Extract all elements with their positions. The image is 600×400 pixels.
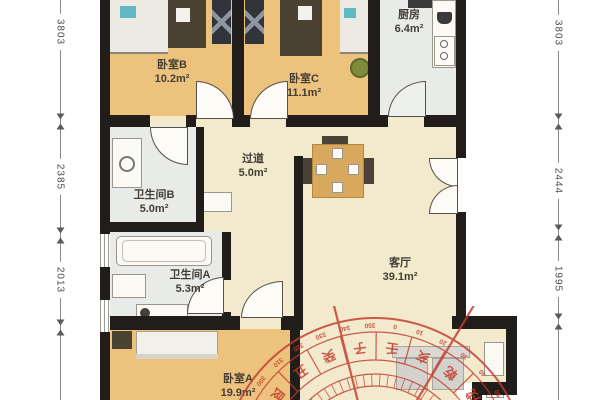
svg-text:艮: 艮 xyxy=(268,385,288,400)
outer-wall-left xyxy=(100,0,110,400)
wall-bathroomA-right-upper xyxy=(222,232,231,280)
svg-text:10: 10 xyxy=(415,327,424,336)
dim-left-3: 2013 xyxy=(54,262,67,298)
wall-under-bedroomB-1 xyxy=(109,115,150,127)
wardrobe-b-detail xyxy=(176,8,190,22)
dimension-line-left xyxy=(60,0,61,400)
wall-under-bedroomB-2 xyxy=(186,115,196,127)
wall-bathroomB-bottom xyxy=(109,222,204,232)
floor-plan-canvas: 卧室B 10.2m² 卧室C 11.1m² 厨房 6.4m² 过道 5.0m² … xyxy=(0,0,600,400)
room-label-kitchen: 厨房 6.4m² xyxy=(395,8,424,37)
window-bathroom-a xyxy=(100,234,110,267)
dim-right-1: 3803 xyxy=(552,15,565,51)
dim-marker xyxy=(554,114,563,131)
kitchen-sink-icon xyxy=(437,12,452,24)
bathtub-inner xyxy=(122,240,206,262)
room-name: 过道 xyxy=(239,152,268,166)
fengshui-compass: 艮丑癸子壬亥乾戌30031032033034035001020304050 xyxy=(203,306,547,400)
room-name: 卫生间B xyxy=(134,188,175,202)
svg-text:20: 20 xyxy=(438,337,448,347)
dim-right-2: 2444 xyxy=(552,163,565,199)
plant-bedroom-c xyxy=(350,58,370,78)
dim-marker xyxy=(56,228,65,245)
pillow-bedroom-c xyxy=(344,8,356,18)
washer-drum-icon xyxy=(119,156,135,172)
room-area: 5.0m² xyxy=(239,166,268,180)
dining-chair-east xyxy=(364,158,374,184)
bathroom-a-sink xyxy=(112,274,146,298)
pillow-bedroom-b xyxy=(120,6,136,18)
svg-text:子: 子 xyxy=(353,340,368,356)
window-bedroom-a xyxy=(100,300,110,332)
stove-burner-icon xyxy=(440,40,448,48)
place-setting xyxy=(316,164,327,175)
dim-left-1: 3803 xyxy=(54,14,67,50)
outer-wall-right-upper xyxy=(456,0,466,158)
hall-cabinet xyxy=(202,192,232,212)
room-label-corridor: 过道 5.0m² xyxy=(239,152,268,181)
svg-text:戌: 戌 xyxy=(463,386,483,400)
dim-right-3: 1995 xyxy=(552,261,565,297)
dimension-line-right xyxy=(558,0,559,400)
svg-text:50: 50 xyxy=(493,388,503,398)
wall-between-doors xyxy=(232,115,250,127)
svg-text:330: 330 xyxy=(314,330,327,341)
wall-under-kitchen-1 xyxy=(380,115,388,127)
room-name: 卧室C xyxy=(287,72,321,86)
wardrobe-c-detail xyxy=(298,6,312,20)
room-label-bathroom-a: 卫生间A 5.3m² xyxy=(170,268,211,297)
room-label-living-room: 客厅 39.1m² xyxy=(383,256,418,285)
bed-bedroom-b xyxy=(110,0,168,54)
svg-text:350: 350 xyxy=(364,321,375,328)
svg-text:亥: 亥 xyxy=(414,347,432,366)
dim-marker xyxy=(56,114,65,131)
svg-text:丑: 丑 xyxy=(291,362,310,382)
wall-bedroomB-bedroomC xyxy=(232,0,244,122)
wall-bathroomB-right xyxy=(196,127,204,232)
room-label-bedroom-b: 卧室B 10.2m² xyxy=(155,58,190,87)
wall-bedroomC-kitchen xyxy=(368,0,380,127)
nightstand-bedroom-a xyxy=(112,331,132,349)
room-area: 6.4m² xyxy=(395,22,424,36)
svg-text:30: 30 xyxy=(459,350,469,360)
bay-panel-right xyxy=(245,0,264,44)
room-area: 11.1m² xyxy=(287,86,321,100)
dim-left-2: 2385 xyxy=(54,159,67,195)
dim-marker xyxy=(56,320,65,337)
wall-corridor-living xyxy=(294,156,303,316)
wall-under-kitchen-2 xyxy=(424,115,456,127)
svg-text:40: 40 xyxy=(478,368,488,378)
room-area: 39.1m² xyxy=(383,270,418,284)
place-setting xyxy=(332,182,343,193)
room-name: 厨房 xyxy=(395,8,424,22)
svg-text:乾: 乾 xyxy=(441,363,460,383)
room-label-bedroom-c: 卧室C 11.1m² xyxy=(287,72,321,101)
room-label-bathroom-b: 卫生间B 5.0m² xyxy=(134,188,175,217)
svg-text:0: 0 xyxy=(393,322,398,329)
room-name: 客厅 xyxy=(383,256,418,270)
room-area: 10.2m² xyxy=(155,72,190,86)
room-area: 5.3m² xyxy=(170,282,211,296)
outer-wall-right-mid xyxy=(456,212,466,318)
room-area: 5.0m² xyxy=(134,202,175,216)
bay-panel-left xyxy=(212,0,231,44)
stove-burner-icon xyxy=(440,52,448,60)
room-name: 卧室B xyxy=(155,58,190,72)
dim-marker xyxy=(554,314,563,331)
svg-text:癸: 癸 xyxy=(319,346,339,366)
dim-marker xyxy=(554,225,563,242)
wall-under-bedroomC xyxy=(286,115,368,127)
room-name: 卫生间A xyxy=(170,268,211,282)
place-setting xyxy=(332,148,343,159)
svg-text:壬: 壬 xyxy=(385,340,400,357)
place-setting xyxy=(348,164,359,175)
